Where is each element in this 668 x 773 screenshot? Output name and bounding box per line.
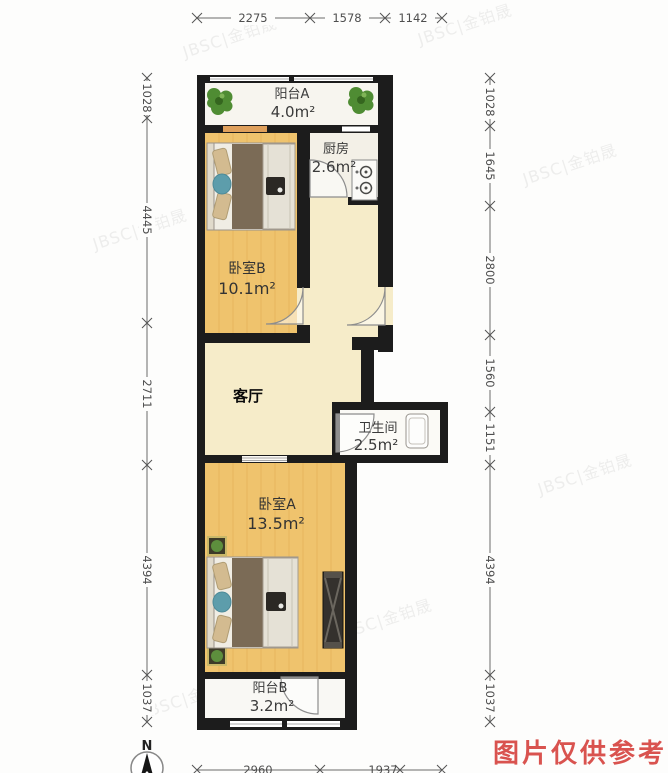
room-area-bathroom: 2.5m²: [354, 436, 398, 454]
double-bed-icon: [207, 143, 295, 230]
double-bed-icon: [207, 557, 298, 648]
room-label-living-room: 客厅: [232, 387, 263, 405]
dim-left-2: 4445: [140, 205, 154, 234]
dimension-chain-bottom: 2960 1937: [192, 763, 447, 773]
dim-left-3: 2711: [140, 379, 154, 408]
window-kitchen: [342, 127, 370, 132]
room-area-bedroom-a: 13.5m²: [247, 514, 305, 533]
room-area-bedroom-b: 10.1m²: [218, 279, 276, 298]
dim-right-2: 1645: [483, 151, 497, 180]
wall-bathroom-right: [440, 402, 448, 463]
room-label-bedroom-b: 卧室B: [228, 260, 266, 277]
reference-notice: 图片仅供参考: [493, 738, 667, 769]
wall-bedroom-b-right: [297, 133, 310, 288]
dim-right-5: 1151: [483, 423, 497, 452]
north-compass-icon: N: [131, 739, 163, 773]
room-label-bathroom: 卫生间: [358, 421, 397, 436]
potted-plant-icon: [207, 646, 227, 666]
wall-bathroom-top: [332, 402, 448, 410]
wall-bedroom-b-bottom: [197, 333, 310, 343]
dim-bottom-2: 1937: [368, 763, 397, 773]
dim-left-1: 1028: [140, 83, 154, 112]
wall-right-lower: [345, 463, 357, 730]
living-room-floor: [205, 343, 361, 410]
floor-plan-svg: JBSC|金铂晟 JBSC|金铂晟 JBSC|金铂晟 JBSC|金铂晟 JBSC…: [0, 0, 668, 773]
wall-entry-side: [361, 350, 374, 402]
potted-plant-icon: [207, 536, 227, 556]
living-room-floor: [205, 402, 332, 463]
dim-top-1: 2275: [238, 11, 267, 25]
wall-bedroom-a-top: [197, 455, 448, 463]
dim-right-4: 1560: [483, 358, 497, 387]
dim-right-3: 2800: [483, 255, 497, 284]
window-mullion: [289, 75, 294, 83]
wall-balcony-b-top: [197, 672, 357, 679]
washbasin-icon: [406, 414, 428, 448]
room-area-balcony-a: 4.0m²: [271, 103, 315, 121]
tv-icon: [266, 592, 286, 611]
floor-plan-image: JBSC|金铂晟 JBSC|金铂晟 JBSC|金铂晟 JBSC|金铂晟 JBSC…: [0, 0, 668, 773]
dim-right-6: 4394: [483, 555, 497, 584]
dimension-chain-right: 1028 1645 2800 1560 1151 4394 1037: [482, 73, 498, 727]
room-label-balcony-b: 阳台B: [253, 681, 288, 696]
dim-top-2: 1578: [332, 11, 361, 25]
watermark-text: JBSC|金铂晟: [519, 140, 619, 189]
dim-right-1: 1028: [483, 87, 497, 116]
room-area-balcony-b: 3.2m²: [250, 697, 294, 715]
room-label-balcony-a: 阳台A: [275, 87, 310, 102]
window-mullion: [282, 718, 287, 730]
window-sill-bedroom-b: [223, 126, 267, 132]
dim-left-4: 4394: [140, 555, 154, 584]
room-area-kitchen: 2.6m²: [312, 158, 356, 176]
dimension-chain-top: 2275 1578 1142: [192, 11, 447, 25]
room-label-kitchen: 厨房: [323, 141, 349, 157]
dim-left-5: 1037: [140, 683, 154, 712]
dimension-chain-left: 1028 4445 2711 4394 1037: [139, 73, 155, 727]
tv-icon: [266, 177, 285, 195]
opening-bedroom-a: [242, 456, 287, 462]
wall-entry-jut: [352, 337, 393, 350]
room-label-bedroom-a: 卧室A: [258, 496, 296, 513]
wall-left: [197, 75, 205, 730]
wardrobe-icon: [323, 572, 343, 648]
dim-bottom-1: 2960: [243, 763, 272, 773]
dim-top-3: 1142: [398, 11, 427, 25]
watermark-text: JBSC|金铂晟: [534, 450, 634, 499]
dim-right-7: 1037: [483, 683, 497, 712]
